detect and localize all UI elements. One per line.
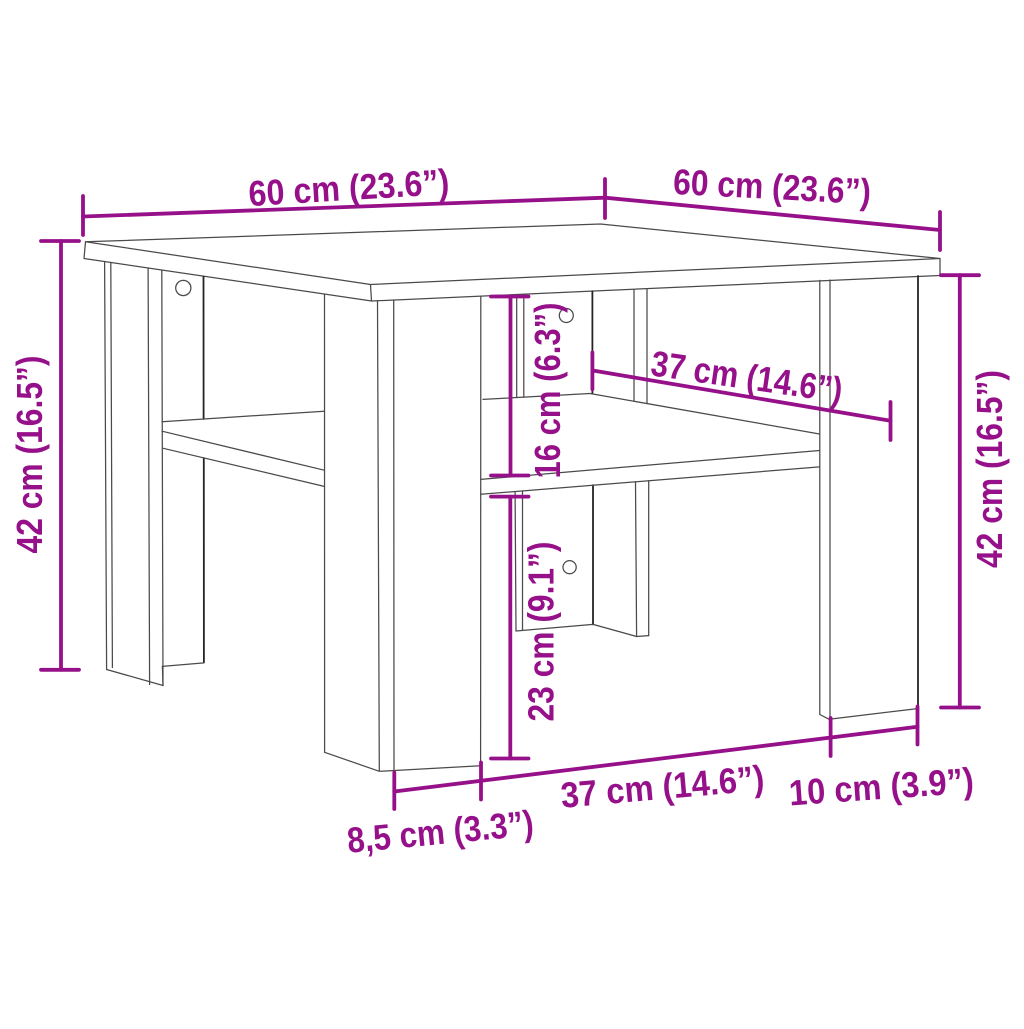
svg-text:16 cm (6.3”): 16 cm (6.3”) [527,303,568,479]
svg-text:42 cm (16.5”): 42 cm (16.5”) [969,370,1010,568]
svg-text:23 cm (9.1”): 23 cm (9.1”) [521,542,562,722]
svg-text:42 cm (16.5”): 42 cm (16.5”) [9,356,50,554]
